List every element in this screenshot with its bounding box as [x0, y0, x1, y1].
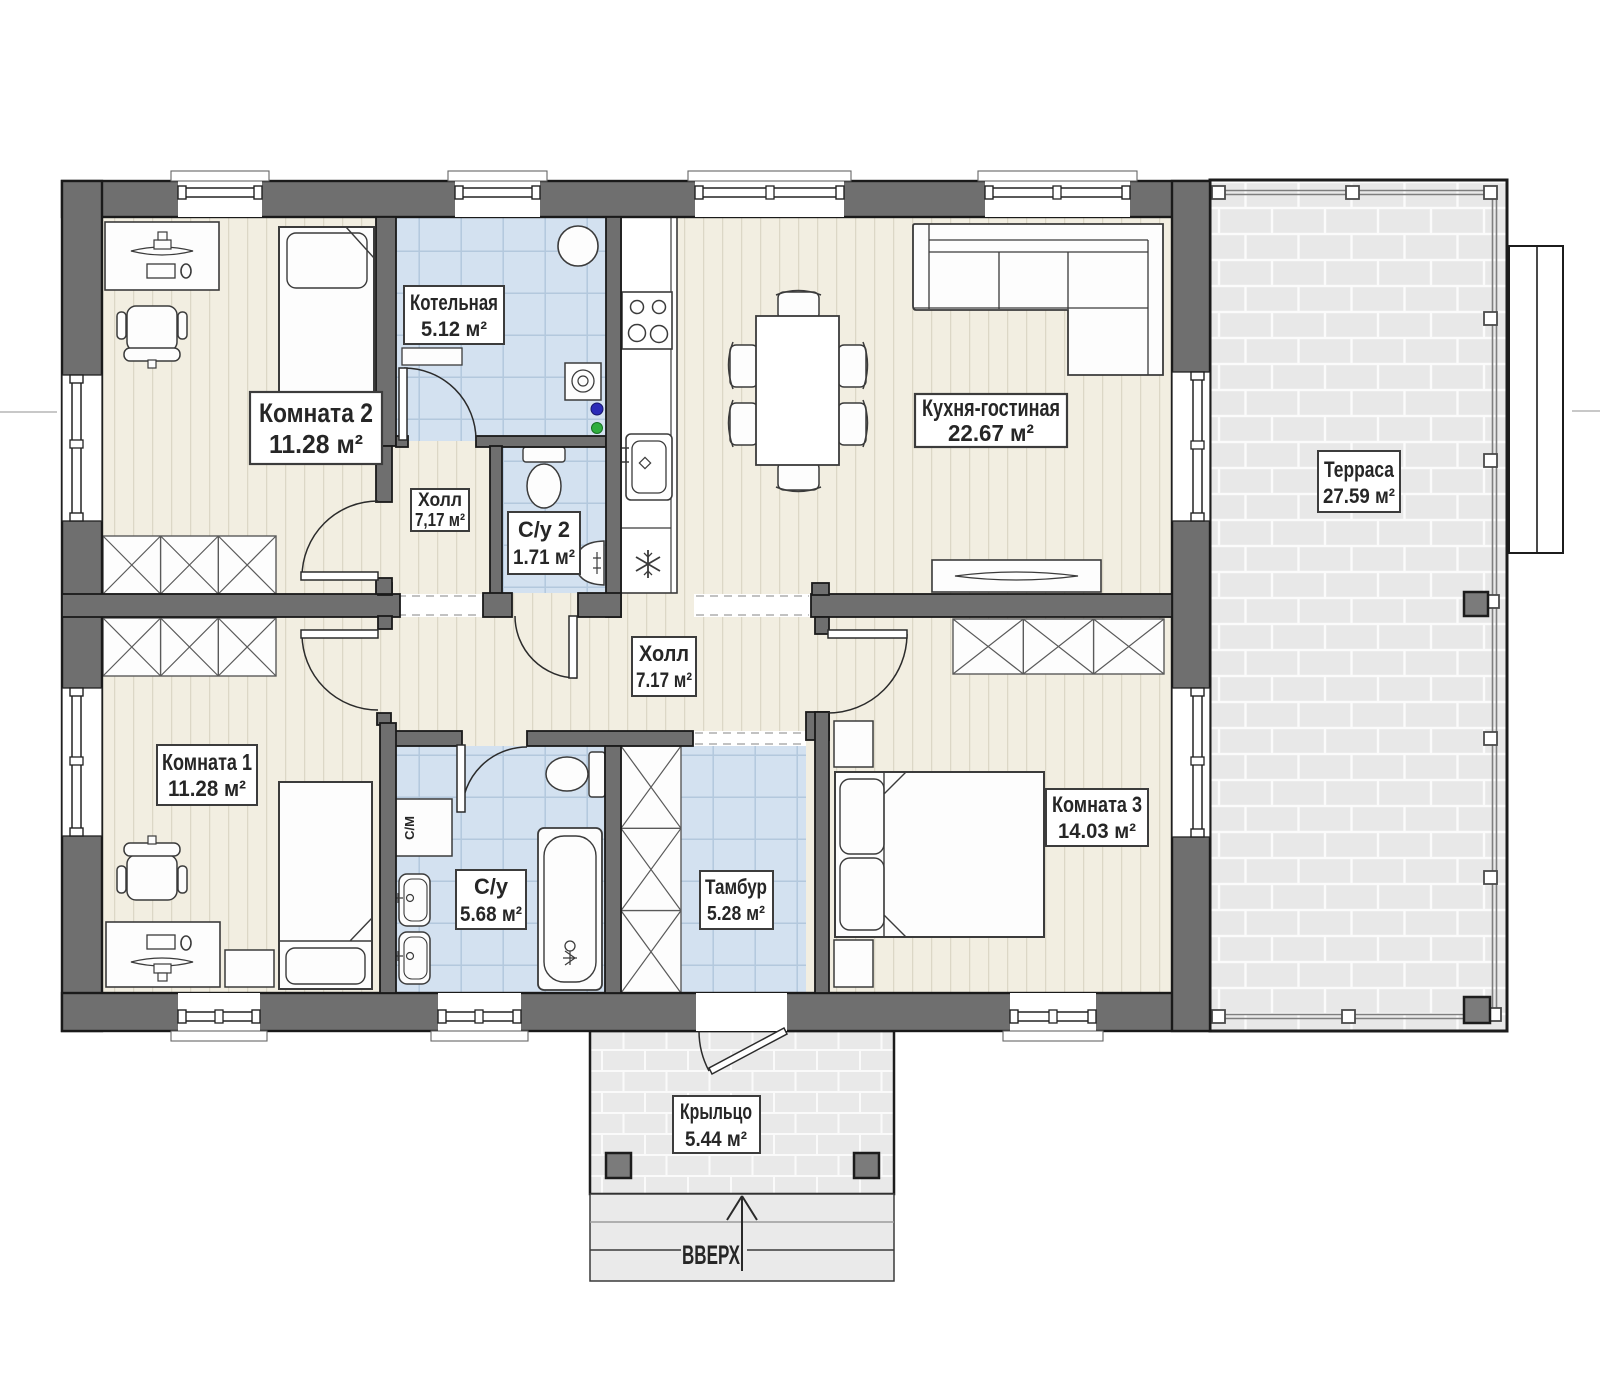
svg-text:С/у: С/у [474, 874, 509, 899]
svg-text:5.28 м²: 5.28 м² [707, 903, 765, 925]
svg-text:С/у 2: С/у 2 [518, 517, 570, 542]
svg-text:ВВЕРХ: ВВЕРХ [682, 1240, 740, 1270]
svg-text:14.03 м²: 14.03 м² [1058, 820, 1136, 843]
svg-text:5.68 м²: 5.68 м² [460, 903, 522, 926]
svg-text:11.28 м²: 11.28 м² [168, 776, 246, 801]
svg-text:22.67 м²: 22.67 м² [948, 420, 1034, 446]
svg-text:Кухня-гостиная: Кухня-гостиная [922, 395, 1060, 422]
svg-text:Холл: Холл [639, 641, 689, 666]
svg-text:Крыльцо: Крыльцо [680, 1099, 752, 1124]
svg-text:1.71 м²: 1.71 м² [513, 546, 575, 569]
svg-text:С/М: С/М [402, 816, 417, 840]
svg-text:Терраса: Терраса [1324, 457, 1395, 482]
svg-text:Комната 3: Комната 3 [1052, 792, 1142, 817]
svg-text:Котельная: Котельная [410, 290, 498, 315]
svg-text:Тамбур: Тамбур [705, 876, 767, 899]
svg-text:Комната 1: Комната 1 [162, 749, 252, 775]
svg-text:7.17 м²: 7.17 м² [636, 669, 692, 692]
svg-text:11.28 м²: 11.28 м² [269, 429, 363, 459]
svg-text:5.44 м²: 5.44 м² [685, 1128, 747, 1151]
svg-text:5.12 м²: 5.12 м² [421, 318, 487, 341]
svg-text:27.59 м²: 27.59 м² [1323, 485, 1395, 508]
svg-text:7,17 м²: 7,17 м² [415, 510, 465, 530]
svg-text:Холл: Холл [418, 490, 462, 511]
svg-text:Комната 2: Комната 2 [259, 398, 373, 428]
